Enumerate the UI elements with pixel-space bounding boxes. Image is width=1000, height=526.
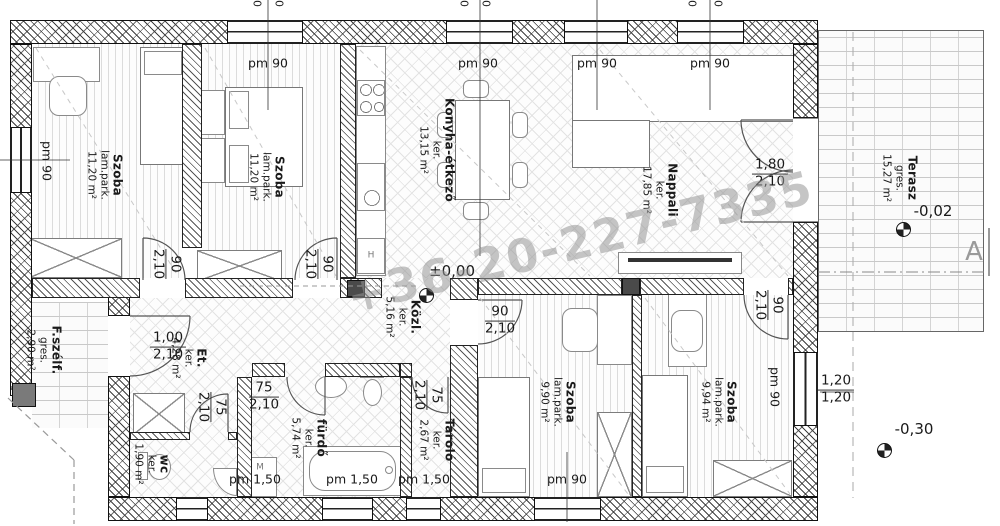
level-label-garden: -0,30 xyxy=(895,421,934,439)
level-label-terrace: -0,02 xyxy=(914,203,953,221)
door-label-furdo: 75 2,10 xyxy=(249,381,279,414)
room-label-terasz: Terasz gres. 15,27 m² xyxy=(881,154,920,202)
room-label-szoba-3: Szoba lam.park. 9,90 m² xyxy=(539,377,578,427)
window-size-label: 1,20 1,20 xyxy=(818,374,854,407)
door-label-wc: 75 2,10 xyxy=(195,392,228,422)
window-label: pm 90 xyxy=(248,57,288,72)
door-label-szoba1: 90 2,10 xyxy=(150,249,183,279)
window-label: pm 90 xyxy=(767,367,782,407)
room-label-szoba-2: Szoba lam.park. 11,20 m² xyxy=(248,152,287,202)
room-label-szoba-1: Szoba lam.park. 11,20 m² xyxy=(86,150,125,200)
room-label-fszelf: F.szélf. gres. 2,90 m² xyxy=(25,326,64,375)
washer-label: M xyxy=(256,463,264,474)
level-marker-icon xyxy=(896,222,911,237)
partial-dimension-text: 0 xyxy=(686,0,699,7)
porch-overhang-dashed xyxy=(8,398,74,524)
level-marker-icon xyxy=(877,443,892,458)
door-swing-furdo xyxy=(287,377,325,415)
window-label: pm 1,50 xyxy=(398,473,450,488)
room-label-wc: wc ker. 1,90 m² xyxy=(133,443,172,484)
room-label-tarolo: Tároló ker. 2,67 m² xyxy=(418,418,457,461)
door-label-tarolo: 75 2,10 xyxy=(411,380,444,410)
partial-dimension-text: 0 xyxy=(480,0,493,7)
partial-dimension-text: 0 xyxy=(273,0,286,7)
window-label: pm 90 xyxy=(458,57,498,72)
window-label: pm 90 xyxy=(577,57,617,72)
partial-dimension-text: 0 xyxy=(458,0,471,7)
window-label: pm 1,50 xyxy=(326,473,378,488)
room-label-konyha: Konyha-étkező ker. 13,15 m² xyxy=(418,98,457,202)
room-label-szoba-4: Szoba lam.park. 9,94 m² xyxy=(700,377,739,427)
window-label: pm 90 xyxy=(690,57,730,72)
window-label: pm 90 xyxy=(39,141,54,181)
door-label-entry: 1,00 2,10 xyxy=(150,331,186,364)
section-marker-a: A xyxy=(965,237,983,267)
partial-dimension-text: 0 xyxy=(712,0,725,7)
door-label-szoba2: 90 2,10 xyxy=(302,249,335,279)
floor-plan: Szoba lam.park. 11,20 m² Szoba lam.park.… xyxy=(0,0,1000,526)
fridge-label: H xyxy=(368,251,375,262)
door-label-szoba3: 90 2,10 xyxy=(485,305,515,338)
door-label-szoba4: 90 2,10 xyxy=(752,290,785,320)
room-label-furdo: fürdő ker. 5,74 m² xyxy=(290,417,329,458)
partial-dimension-text: 0 xyxy=(251,0,264,7)
window-label: pm 90 xyxy=(547,473,587,488)
window-label: pm 1,50 xyxy=(229,473,281,488)
